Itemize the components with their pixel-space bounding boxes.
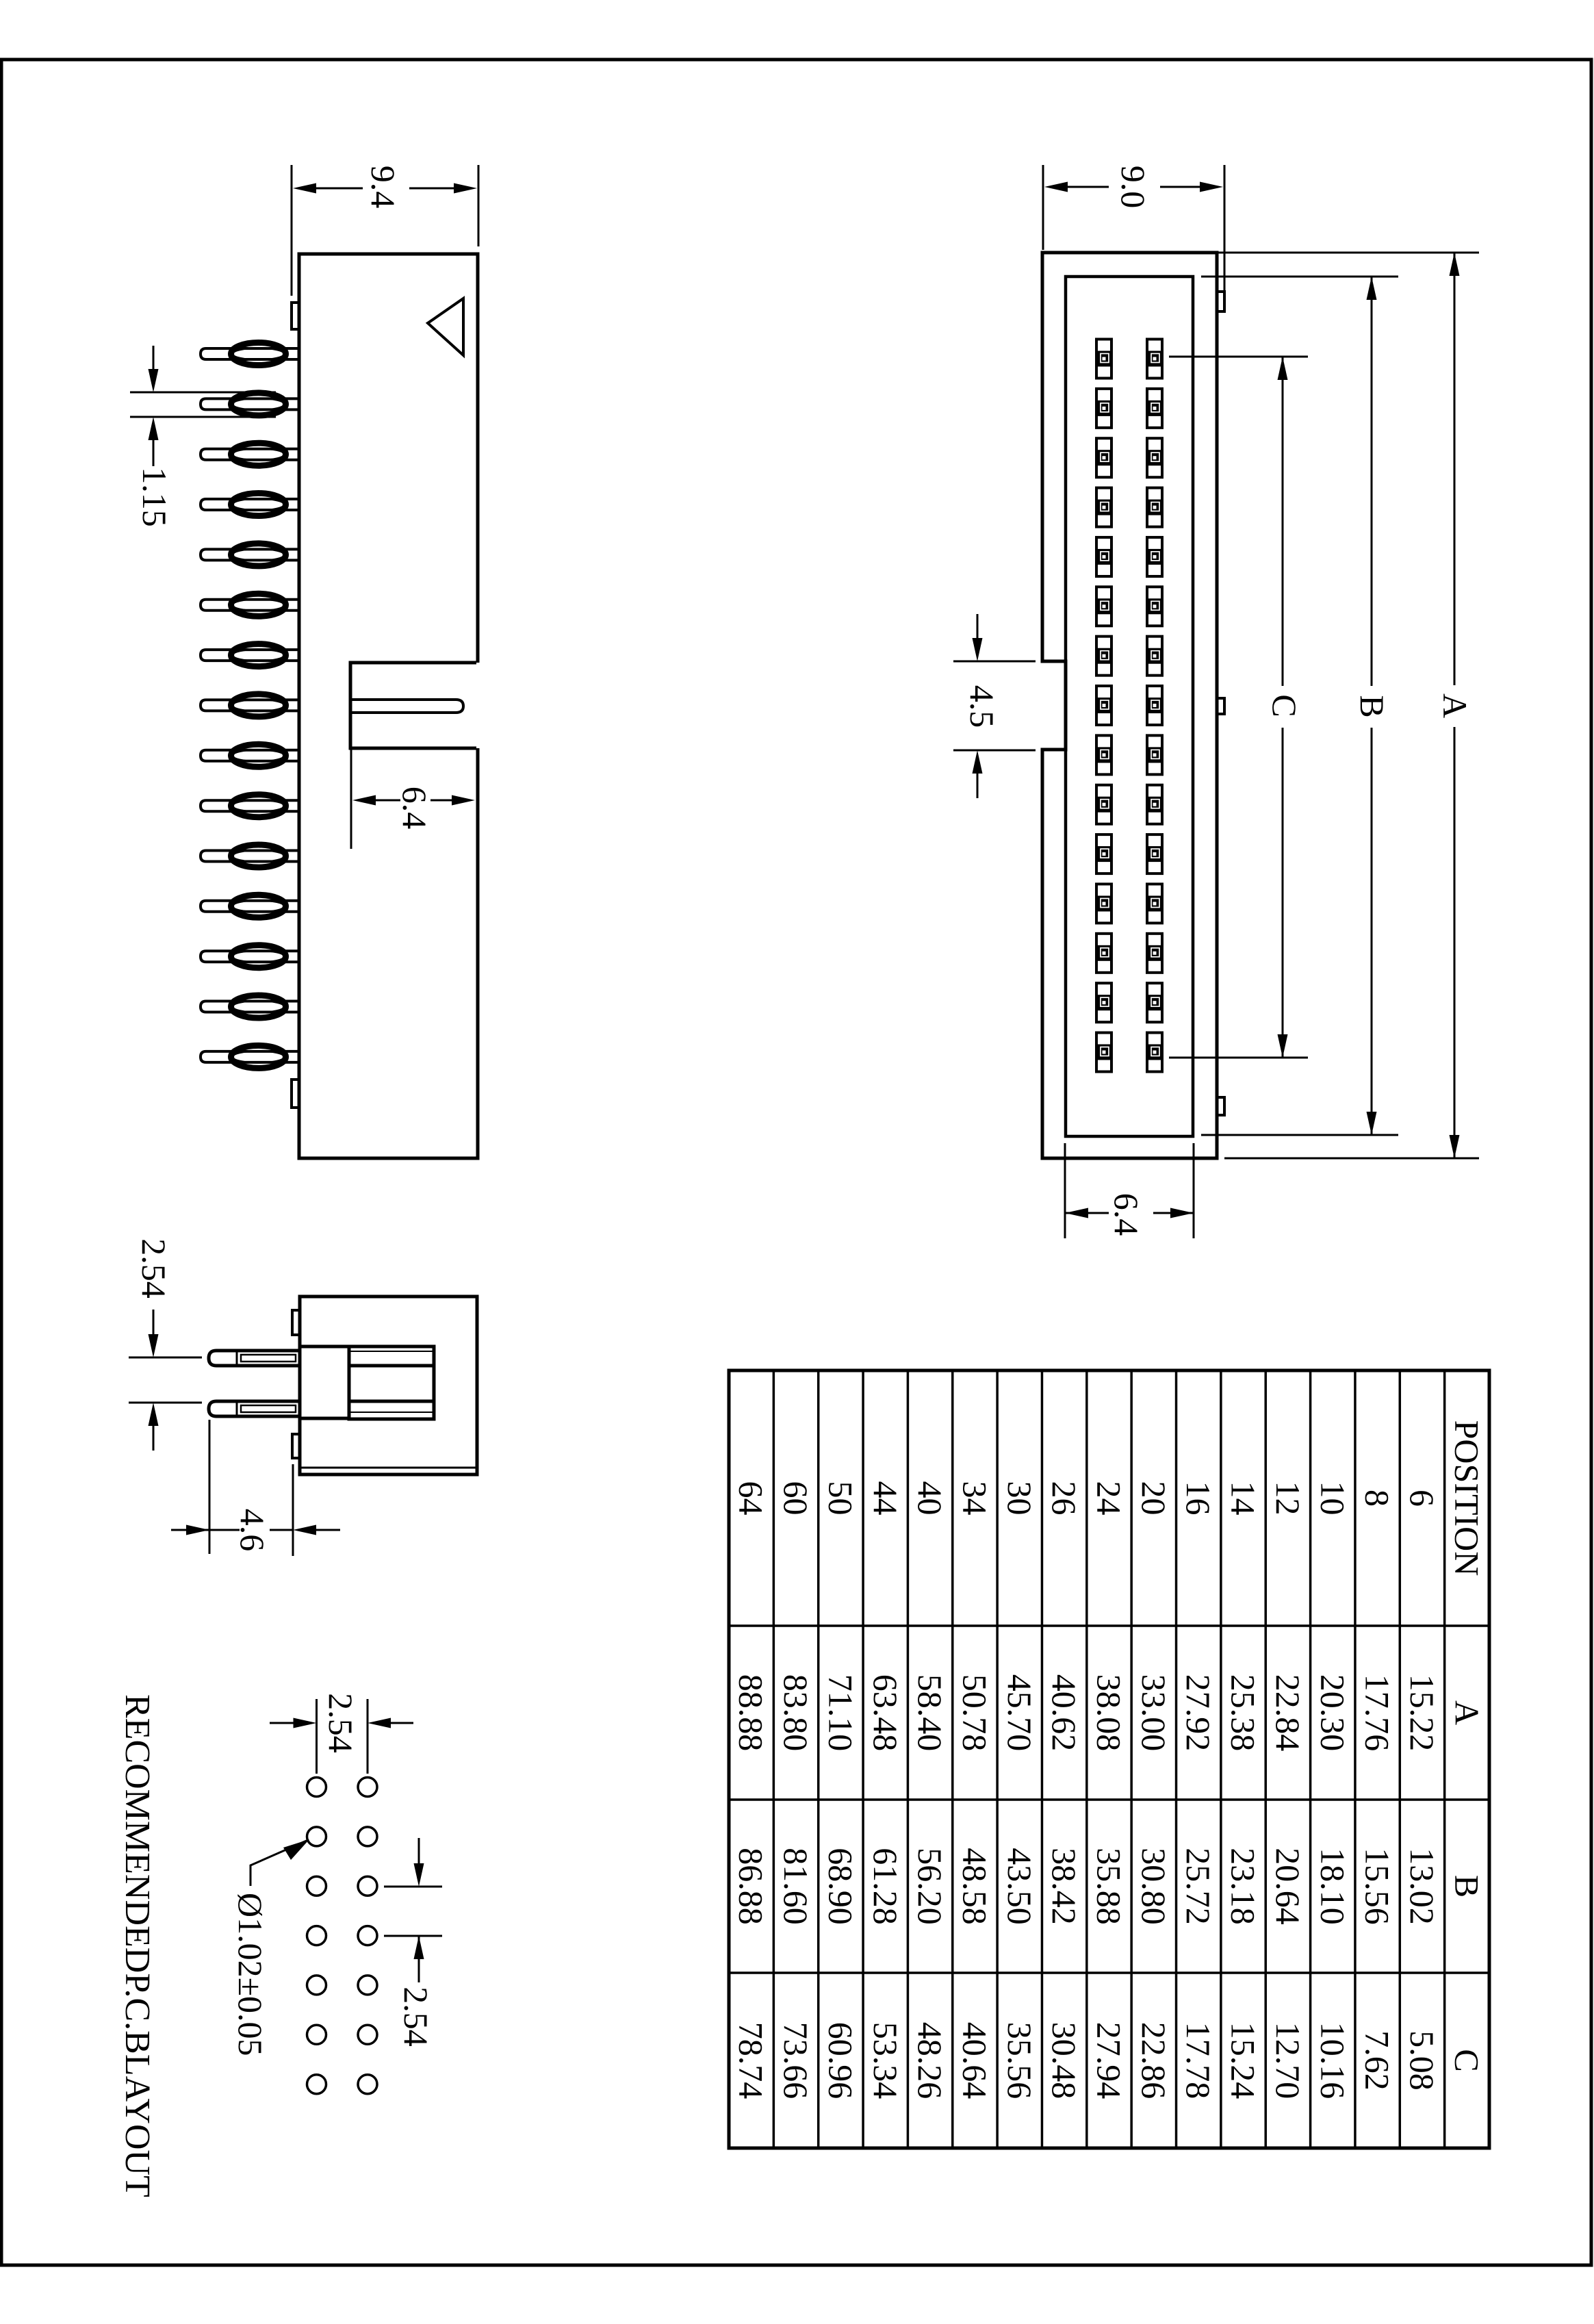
svg-text:9.4: 9.4 xyxy=(364,166,402,209)
svg-text:78.74: 78.74 xyxy=(732,2022,771,2099)
svg-text:40.64: 40.64 xyxy=(955,2022,994,2099)
svg-text:30.48: 30.48 xyxy=(1045,2022,1083,2099)
svg-text:10: 10 xyxy=(1313,1481,1352,1516)
svg-text:34: 34 xyxy=(955,1481,994,1516)
svg-text:17.76: 17.76 xyxy=(1359,1674,1397,1752)
svg-text:83.80: 83.80 xyxy=(777,1674,815,1752)
svg-text:38.08: 38.08 xyxy=(1090,1674,1129,1752)
svg-text:30.80: 30.80 xyxy=(1135,1848,1173,1925)
svg-text:8: 8 xyxy=(1359,1490,1397,1507)
svg-text:61.28: 61.28 xyxy=(866,1848,905,1925)
svg-text:86.88: 86.88 xyxy=(732,1848,771,1925)
svg-text:63.48: 63.48 xyxy=(866,1674,905,1752)
svg-text:6: 6 xyxy=(1403,1490,1441,1507)
svg-text:5.08: 5.08 xyxy=(1403,2030,1441,2091)
svg-text:27.94: 27.94 xyxy=(1090,2022,1129,2099)
svg-text:22.86: 22.86 xyxy=(1135,2022,1173,2099)
svg-text:17.78: 17.78 xyxy=(1179,2022,1218,2099)
svg-text:44: 44 xyxy=(866,1481,905,1516)
svg-text:38.42: 38.42 xyxy=(1045,1848,1083,1925)
svg-text:2.54: 2.54 xyxy=(322,1693,360,1753)
svg-text:53.34: 53.34 xyxy=(866,2022,905,2099)
svg-text:88.88: 88.88 xyxy=(732,1674,771,1752)
svg-text:4.5: 4.5 xyxy=(963,685,1001,728)
svg-text:Ø1.02±0.05: Ø1.02±0.05 xyxy=(231,1893,270,2056)
svg-text:40.62: 40.62 xyxy=(1045,1674,1083,1752)
svg-text:C: C xyxy=(1448,2049,1486,2071)
svg-text:50: 50 xyxy=(821,1481,860,1516)
svg-text:2.54: 2.54 xyxy=(135,1238,173,1299)
svg-text:45.70: 45.70 xyxy=(1001,1674,1039,1752)
svg-text:15.56: 15.56 xyxy=(1359,1848,1397,1925)
svg-text:24: 24 xyxy=(1090,1481,1129,1516)
svg-text:48.26: 48.26 xyxy=(911,2022,949,2099)
svg-text:35.56: 35.56 xyxy=(1001,2022,1039,2099)
svg-text:B: B xyxy=(1353,695,1391,717)
svg-text:48.58: 48.58 xyxy=(955,1848,994,1925)
svg-text:81.60: 81.60 xyxy=(777,1848,815,1925)
svg-text:64: 64 xyxy=(732,1481,771,1516)
svg-text:58.40: 58.40 xyxy=(911,1674,949,1752)
svg-text:33.00: 33.00 xyxy=(1135,1674,1173,1752)
svg-text:6.4: 6.4 xyxy=(396,787,434,830)
svg-text:40: 40 xyxy=(911,1481,949,1516)
svg-text:6.4: 6.4 xyxy=(1107,1193,1146,1236)
svg-text:60.96: 60.96 xyxy=(821,2022,860,2099)
svg-text:10.16: 10.16 xyxy=(1313,2022,1352,2099)
svg-text:16: 16 xyxy=(1179,1481,1218,1516)
svg-text:68.90: 68.90 xyxy=(821,1848,860,1925)
svg-text:15.22: 15.22 xyxy=(1403,1674,1441,1752)
svg-text:7.62: 7.62 xyxy=(1359,2030,1397,2091)
svg-text:1.15: 1.15 xyxy=(136,467,174,527)
svg-text:POSITION: POSITION xyxy=(1448,1420,1486,1576)
svg-text:56.20: 56.20 xyxy=(911,1848,949,1925)
svg-text:RECOMMENDEDP.C.BLAYOUT: RECOMMENDEDP.C.BLAYOUT xyxy=(118,1694,157,2197)
svg-text:27.92: 27.92 xyxy=(1179,1674,1218,1752)
svg-text:12.70: 12.70 xyxy=(1269,2022,1307,2099)
svg-text:2.54: 2.54 xyxy=(397,1987,435,2047)
svg-text:43.50: 43.50 xyxy=(1001,1848,1039,1925)
svg-text:20: 20 xyxy=(1135,1481,1173,1516)
svg-text:4.6: 4.6 xyxy=(233,1509,272,1552)
svg-text:35.88: 35.88 xyxy=(1090,1848,1129,1925)
svg-text:15.24: 15.24 xyxy=(1224,2022,1263,2099)
svg-text:A: A xyxy=(1448,1700,1486,1725)
svg-text:50.78: 50.78 xyxy=(955,1674,994,1752)
svg-text:C: C xyxy=(1265,694,1304,717)
svg-text:20.64: 20.64 xyxy=(1269,1848,1307,1925)
svg-text:20.30: 20.30 xyxy=(1313,1674,1352,1752)
svg-text:18.10: 18.10 xyxy=(1313,1848,1352,1925)
svg-text:73.66: 73.66 xyxy=(777,2022,815,2099)
svg-text:25.38: 25.38 xyxy=(1224,1674,1263,1752)
svg-text:26: 26 xyxy=(1045,1481,1083,1516)
svg-text:14: 14 xyxy=(1224,1481,1263,1516)
svg-text:13.02: 13.02 xyxy=(1403,1848,1441,1925)
svg-text:A: A xyxy=(1436,693,1474,718)
svg-text:71.10: 71.10 xyxy=(821,1674,860,1752)
svg-text:22.84: 22.84 xyxy=(1269,1674,1307,1752)
svg-text:23.18: 23.18 xyxy=(1224,1848,1263,1925)
svg-text:9.0: 9.0 xyxy=(1114,166,1153,209)
svg-text:12: 12 xyxy=(1269,1481,1307,1516)
svg-text:60: 60 xyxy=(777,1481,815,1516)
svg-text:25.72: 25.72 xyxy=(1179,1848,1218,1925)
svg-text:B: B xyxy=(1448,1875,1486,1898)
svg-text:30: 30 xyxy=(1001,1481,1039,1516)
